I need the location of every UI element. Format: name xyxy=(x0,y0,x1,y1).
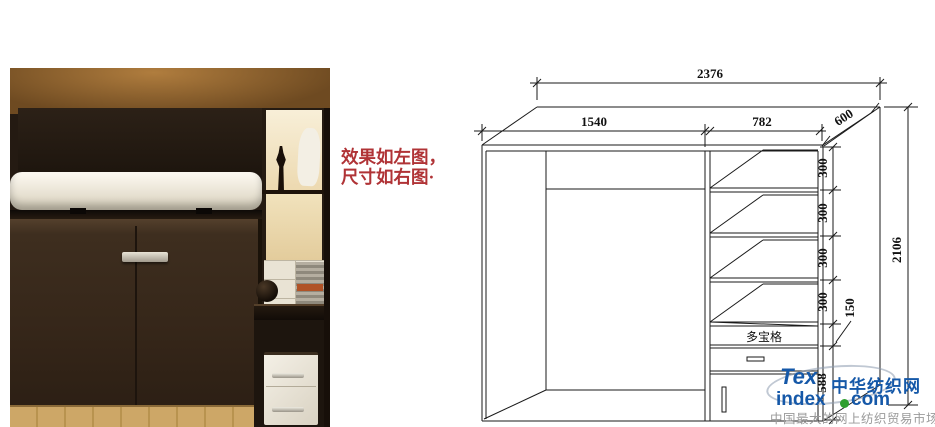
wood-floor xyxy=(10,405,264,427)
lower-alcove xyxy=(266,194,322,260)
shelf-item xyxy=(297,284,323,291)
dim-shelf-4: 300 xyxy=(815,292,830,312)
door-handle xyxy=(122,252,168,262)
page: 效果如左图， 尺寸如右图· xyxy=(0,0,935,427)
drawer-split xyxy=(266,386,316,387)
dark-vase xyxy=(256,280,278,302)
rail-latch-left xyxy=(70,208,86,214)
dim-shelf-2: 300 xyxy=(815,203,830,223)
cabinet-dimension-diagram: 2376 1540 782 600 300 300 300 300 150 58… xyxy=(460,60,935,427)
dim-total-width: 2376 xyxy=(697,66,724,81)
folded-bed-slab xyxy=(10,172,262,210)
dim-bottom-section: 588 xyxy=(814,373,829,393)
display-shelf-unit xyxy=(262,108,330,427)
wardrobe-photo xyxy=(10,68,330,427)
drawer-handle-mark xyxy=(747,357,764,361)
dimension-lines xyxy=(474,77,918,424)
drawer-handle xyxy=(272,373,304,378)
rail-latch-right xyxy=(196,208,212,214)
figurine-statue xyxy=(275,146,287,192)
white-file-cabinet xyxy=(264,352,318,425)
bed-rail xyxy=(10,210,262,219)
dark-recess xyxy=(18,108,264,180)
dim-small-cell: 150 xyxy=(842,298,857,318)
backlit-alcove xyxy=(266,110,322,194)
dim-total-height: 2106 xyxy=(889,237,904,264)
dim-shelf-3: 300 xyxy=(815,248,830,268)
dim-shelf-1: 300 xyxy=(815,158,830,178)
right-frame-edge xyxy=(324,108,330,427)
drawer-handle xyxy=(272,407,304,412)
hanging-garment xyxy=(296,127,321,186)
dim-right-width: 782 xyxy=(752,114,772,129)
dim-left-width: 1540 xyxy=(581,114,607,129)
door-handle-mark xyxy=(722,387,726,412)
compartment-label: 多宝格 xyxy=(746,329,782,344)
